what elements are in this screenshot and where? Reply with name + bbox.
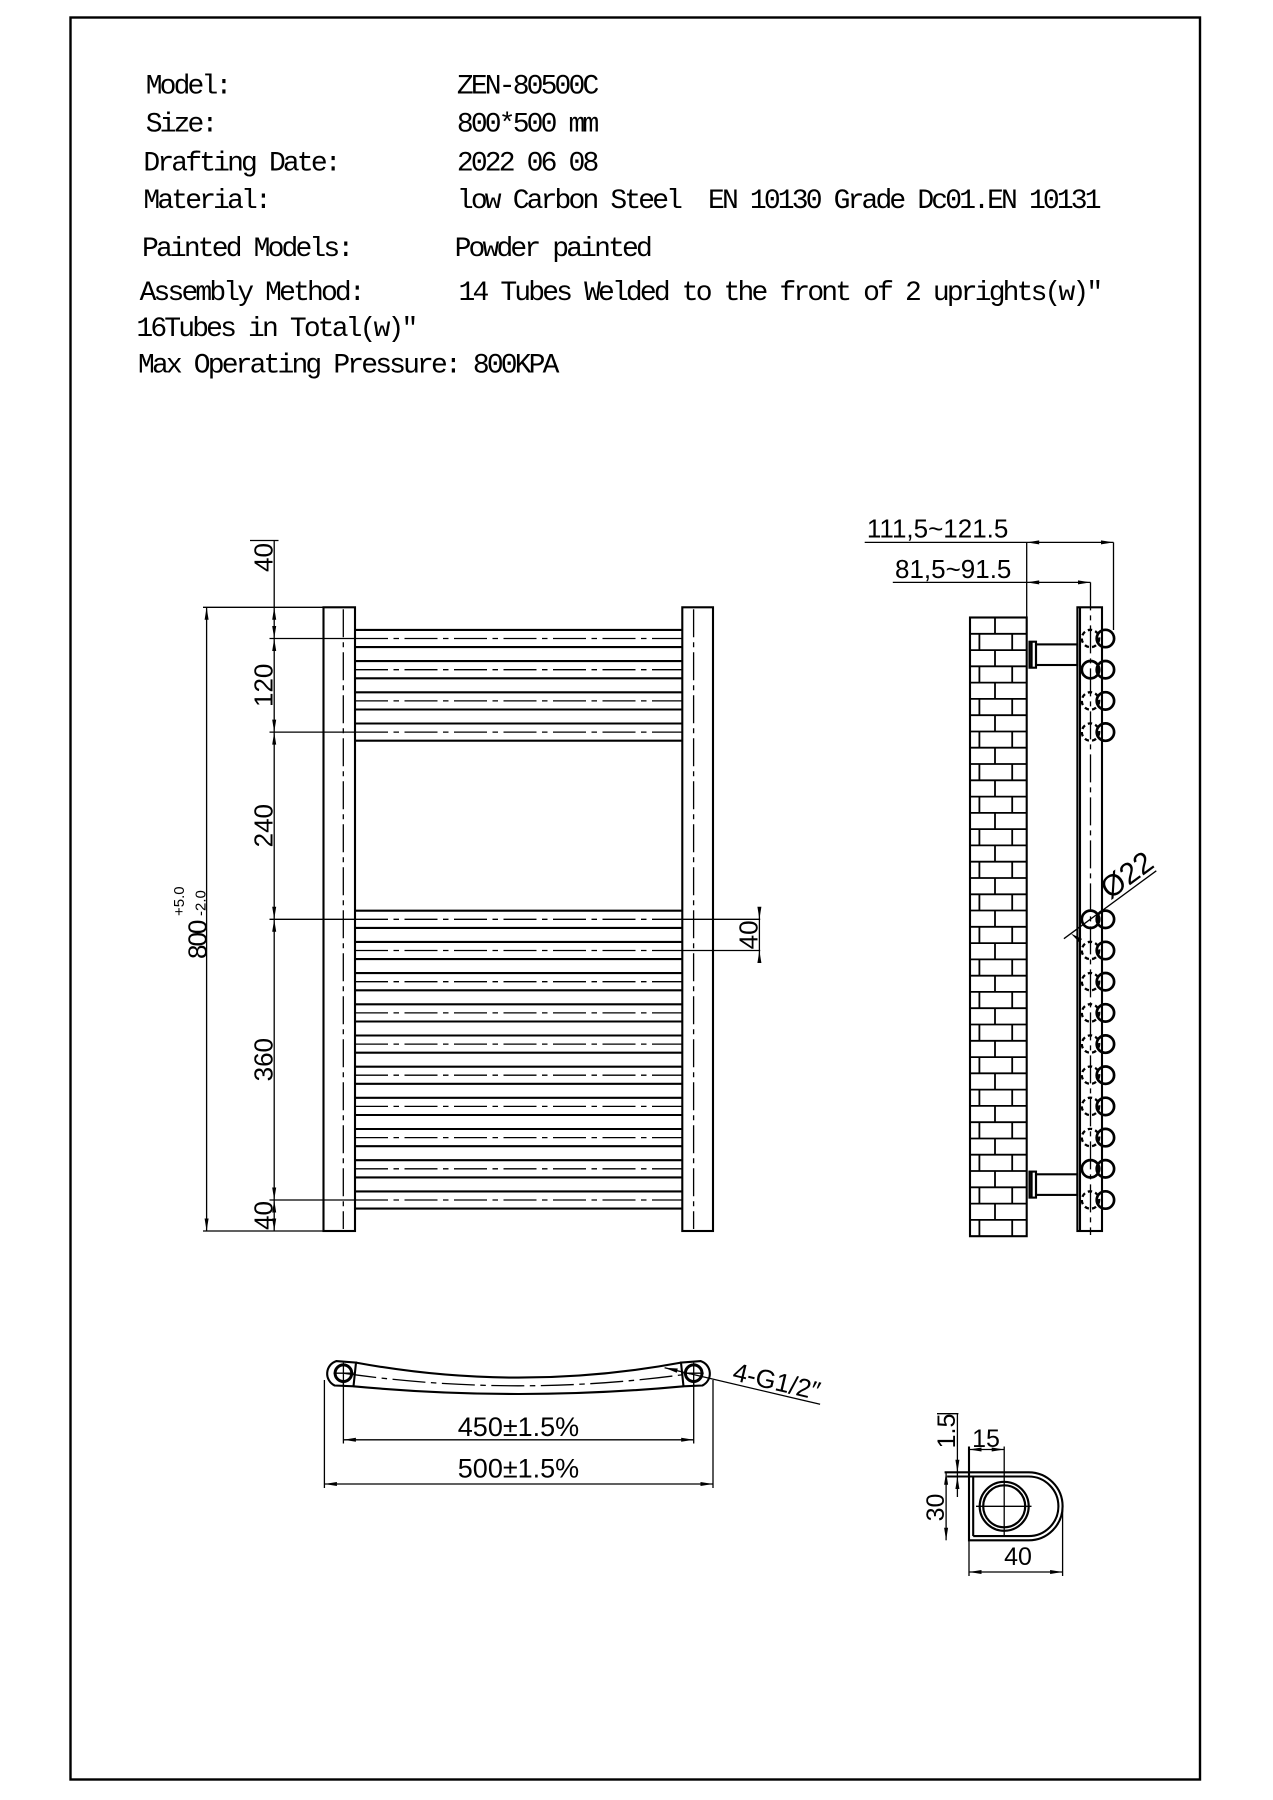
svg-text:Assembly Method:: Assembly Method: <box>140 278 363 309</box>
svg-text:40: 40 <box>1004 1543 1032 1571</box>
svg-text:800*500 mm: 800*500 mm <box>457 110 599 141</box>
svg-text:500±1.5%: 500±1.5% <box>458 1454 579 1484</box>
svg-text:40: 40 <box>248 1201 278 1230</box>
svg-text:81,5~91.5: 81,5~91.5 <box>895 554 1011 584</box>
svg-text:1.5: 1.5 <box>933 1414 961 1449</box>
svg-text:450±1.5%: 450±1.5% <box>458 1412 579 1442</box>
svg-text:120: 120 <box>248 664 278 707</box>
svg-text:800: 800 <box>182 920 212 959</box>
svg-text:Drafting Date:: Drafting Date: <box>143 149 338 180</box>
svg-text:111,5~121.5: 111,5~121.5 <box>867 514 1008 544</box>
svg-text:ZEN-80500C: ZEN-80500C <box>457 72 599 103</box>
svg-text:Model:: Model: <box>146 72 230 103</box>
svg-text:40: 40 <box>733 920 763 949</box>
svg-text:30: 30 <box>922 1494 950 1522</box>
svg-text:360: 360 <box>248 1038 278 1081</box>
svg-text:15: 15 <box>972 1425 1000 1453</box>
svg-text:240: 240 <box>248 804 278 847</box>
svg-text:Max Operating Pressure: 800KPA: Max Operating Pressure: 800KPA <box>138 350 560 381</box>
svg-text:16Tubes in Total(w)″: 16Tubes in Total(w)″ <box>136 314 415 345</box>
svg-text:-2.0: -2.0 <box>192 890 209 916</box>
svg-text:40: 40 <box>248 543 278 572</box>
svg-text:Material:: Material: <box>143 186 269 217</box>
svg-text:Powder painted: Powder painted <box>455 234 651 265</box>
svg-text:Painted Models:: Painted Models: <box>142 234 351 265</box>
svg-text:+5.0: +5.0 <box>171 886 188 916</box>
svg-text:Size:: Size: <box>146 110 216 141</box>
svg-text:low Carbon Steel EN 10130 Gra: low Carbon Steel EN 10130 Grade Dc01.EN … <box>457 186 1101 217</box>
svg-text:2022 06 08: 2022 06 08 <box>457 149 598 180</box>
svg-text:14 Tubes Welded to the front o: 14 Tubes Welded to the front of 2 uprigh… <box>459 278 1101 309</box>
